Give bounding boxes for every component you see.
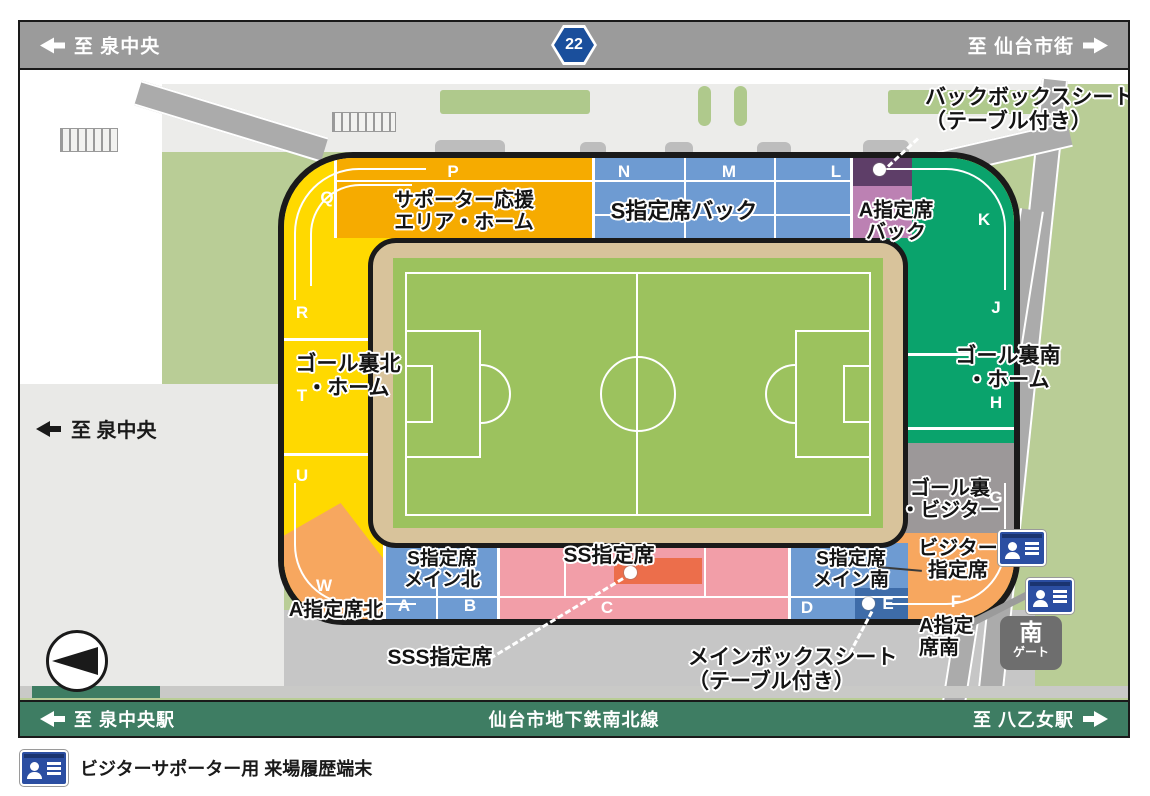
arrow-right-icon (1082, 37, 1108, 53)
top-bar-left: 至 泉中央 (40, 32, 160, 59)
callout-main-box: メインボックスシート（テーブル付き） (688, 646, 897, 693)
legend-label: ビジターサポーター用 来場履歴端末 (80, 755, 372, 781)
arrow-left-icon (40, 711, 66, 727)
map-frame: 至 泉中央 22 至 仙台市街 (18, 20, 1130, 738)
top-road-bar: 至 泉中央 22 至 仙台市街 (20, 22, 1128, 70)
athletics-track (368, 238, 908, 548)
back-box-dot (873, 163, 886, 176)
section-letter-c: C (601, 598, 613, 618)
section-letter-h: H (990, 393, 1002, 413)
section-letter-m: M (722, 162, 736, 182)
top-margin-strip (20, 70, 1128, 84)
label-goal-north: ゴール裏北・ホーム (296, 352, 401, 399)
section-letter-q: Q (320, 188, 333, 208)
label-goal-visitor: ゴール裏・ビジター (900, 478, 1000, 523)
visitor-terminal-icon (20, 750, 68, 786)
route-number: 22 (554, 28, 594, 62)
label-supporter-area: サポーター応援エリア・ホーム (394, 190, 534, 235)
section-letter-j: J (991, 298, 1000, 318)
stadium-bowl: Q P N M L K R T U J H G F W A B C D E サポ… (278, 152, 1020, 625)
football-pitch (393, 258, 883, 528)
section-letter-l: L (831, 162, 841, 182)
top-right-label: 至 仙台市街 (968, 32, 1074, 59)
goal-area-right (843, 365, 871, 423)
section-letter-n: N (618, 162, 630, 182)
bottom-left-label: 至 泉中央駅 (74, 706, 175, 732)
legend: ビジターサポーター用 来場履歴端末 (20, 750, 372, 786)
center-circle (600, 356, 676, 432)
section-letter-r: R (296, 303, 308, 323)
bottom-bar-center: 仙台市地下鉄南北線 (489, 706, 660, 732)
sss-dot (624, 566, 637, 579)
section-letter-f: F (951, 592, 961, 612)
top-left-label: 至 泉中央 (74, 32, 160, 59)
label-s-main-south: S指定席メイン南 (813, 549, 889, 592)
label-a-south: A指定席南 (919, 615, 973, 660)
planter-pillar (734, 86, 747, 126)
label-goal-south: ゴール裏南・ホーム (956, 344, 1061, 391)
rail-strip-green (32, 686, 160, 698)
west-road-text: 至 泉中央 (71, 414, 157, 443)
arrow-left-icon (40, 37, 66, 53)
label-s-main-north: S指定席メイン北 (404, 549, 480, 592)
arrow-right-icon (1082, 711, 1108, 727)
west-road-label: 至 泉中央 (36, 414, 157, 443)
south-gate: 南 ゲート (1000, 616, 1062, 670)
goal-area-left (405, 365, 433, 423)
label-a-north: A指定席北 (289, 599, 383, 621)
section-letter-u: U (296, 466, 308, 486)
route-hexagon-icon: 22 (551, 25, 597, 65)
stairs-hatch-north (332, 112, 396, 132)
stadium-map: 至 泉中央 (20, 70, 1128, 700)
bottom-bar-left: 至 泉中央駅 (40, 706, 175, 732)
arrow-left-icon (36, 421, 62, 437)
label-a-back: A指定席バック (859, 200, 933, 245)
bottom-right-label: 至 八乙女駅 (973, 706, 1074, 732)
section-letter-w: W (316, 576, 332, 596)
callout-sss: SSS指定席 (387, 646, 492, 670)
planter-pillar (698, 86, 711, 126)
callout-back-box: バックボックスシート（テーブル付き） (925, 86, 1128, 133)
route-sign: 22 (551, 25, 597, 65)
gate-name-large: 南 (1000, 619, 1062, 645)
section-letter-d: D (801, 598, 813, 618)
subway-bar: 至 泉中央駅 仙台市地下鉄南北線 至 八乙女駅 (20, 700, 1128, 736)
subway-line-label: 仙台市地下鉄南北線 (489, 706, 660, 732)
top-bar-right: 至 仙台市街 (968, 32, 1108, 59)
bottom-bar-right: 至 八乙女駅 (973, 706, 1108, 732)
gate-name-small: ゲート (1000, 645, 1062, 659)
label-ss: SS指定席 (563, 544, 654, 568)
planter-strip (440, 90, 590, 114)
main-box-dot (862, 597, 875, 610)
label-visitor-seat: ビジター指定席 (918, 538, 998, 583)
label-s-back: S指定席バック (611, 200, 758, 225)
north-compass-icon (46, 630, 108, 692)
section-letter-a: A (398, 596, 410, 616)
section-letter-b: B (464, 596, 476, 616)
section-letter-k: K (978, 210, 990, 230)
visitor-terminal-icon (998, 530, 1046, 566)
section-letter-p: P (447, 162, 458, 182)
visitor-terminal-icon (1026, 578, 1074, 614)
stairs-hatch-west (60, 128, 118, 152)
section-letter-e: E (882, 594, 893, 614)
rail-strip (20, 686, 1128, 698)
